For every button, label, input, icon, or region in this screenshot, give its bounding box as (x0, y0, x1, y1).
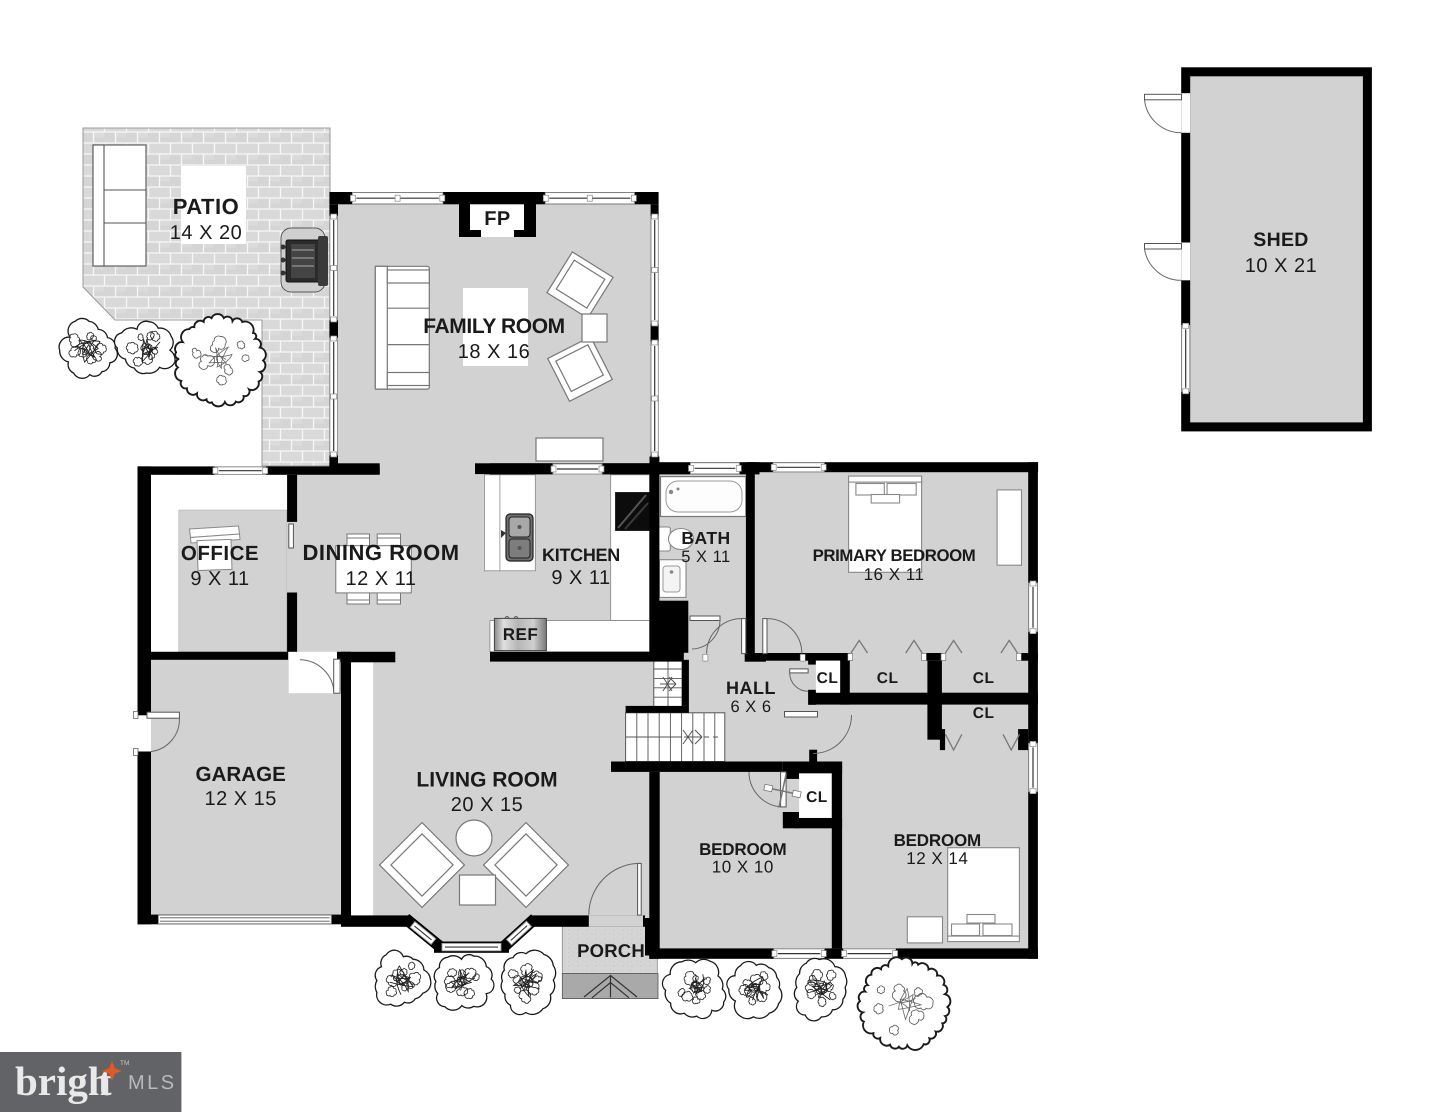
svg-text:9 X 11: 9 X 11 (551, 567, 610, 589)
svg-text:16 X 11: 16 X 11 (864, 565, 925, 584)
svg-text:DINING ROOM: DINING ROOM (302, 540, 459, 565)
svg-text:MLS: MLS (128, 1072, 177, 1094)
svg-text:5 X 11: 5 X 11 (681, 548, 730, 566)
svg-text:CL: CL (806, 789, 828, 806)
svg-text:OFFICE: OFFICE (181, 542, 259, 565)
svg-text:10 X 10: 10 X 10 (712, 858, 774, 877)
svg-text:FAMILY ROOM: FAMILY ROOM (423, 315, 564, 338)
svg-text:CL: CL (973, 670, 995, 687)
svg-text:10 X 21: 10 X 21 (1245, 255, 1317, 277)
svg-text:9 X 11: 9 X 11 (190, 568, 249, 590)
svg-text:20 X 15: 20 X 15 (451, 794, 523, 816)
svg-text:BATH: BATH (681, 528, 730, 548)
svg-text:BEDROOM: BEDROOM (894, 831, 981, 850)
svg-text:12 X 14: 12 X 14 (906, 849, 968, 868)
svg-text:12 X 15: 12 X 15 (204, 788, 276, 810)
svg-text:6 X 6: 6 X 6 (730, 698, 771, 716)
svg-text:CL: CL (877, 670, 899, 687)
svg-text:GARAGE: GARAGE (196, 763, 286, 786)
svg-text:brigh: brigh (15, 1058, 111, 1105)
svg-text:CL: CL (817, 670, 839, 687)
svg-text:TM: TM (120, 1060, 129, 1067)
svg-text:REF: REF (503, 625, 539, 644)
svg-text:SHED: SHED (1253, 229, 1308, 251)
svg-text:HALL: HALL (726, 678, 776, 698)
svg-text:CL: CL (973, 705, 995, 722)
svg-text:BEDROOM: BEDROOM (699, 840, 786, 859)
svg-text:14 X 20: 14 X 20 (170, 222, 242, 244)
svg-text:12 X 11: 12 X 11 (346, 568, 417, 590)
svg-text:LIVING ROOM: LIVING ROOM (416, 769, 557, 792)
svg-text:PORCH: PORCH (577, 940, 645, 961)
svg-text:PATIO: PATIO (173, 194, 239, 219)
svg-text:FP: FP (484, 208, 511, 230)
svg-text:KITCHEN: KITCHEN (542, 545, 620, 565)
svg-text:18 X 16: 18 X 16 (458, 341, 530, 363)
svg-text:t: t (98, 1058, 112, 1104)
svg-text:PRIMARY BEDROOM: PRIMARY BEDROOM (813, 546, 976, 565)
